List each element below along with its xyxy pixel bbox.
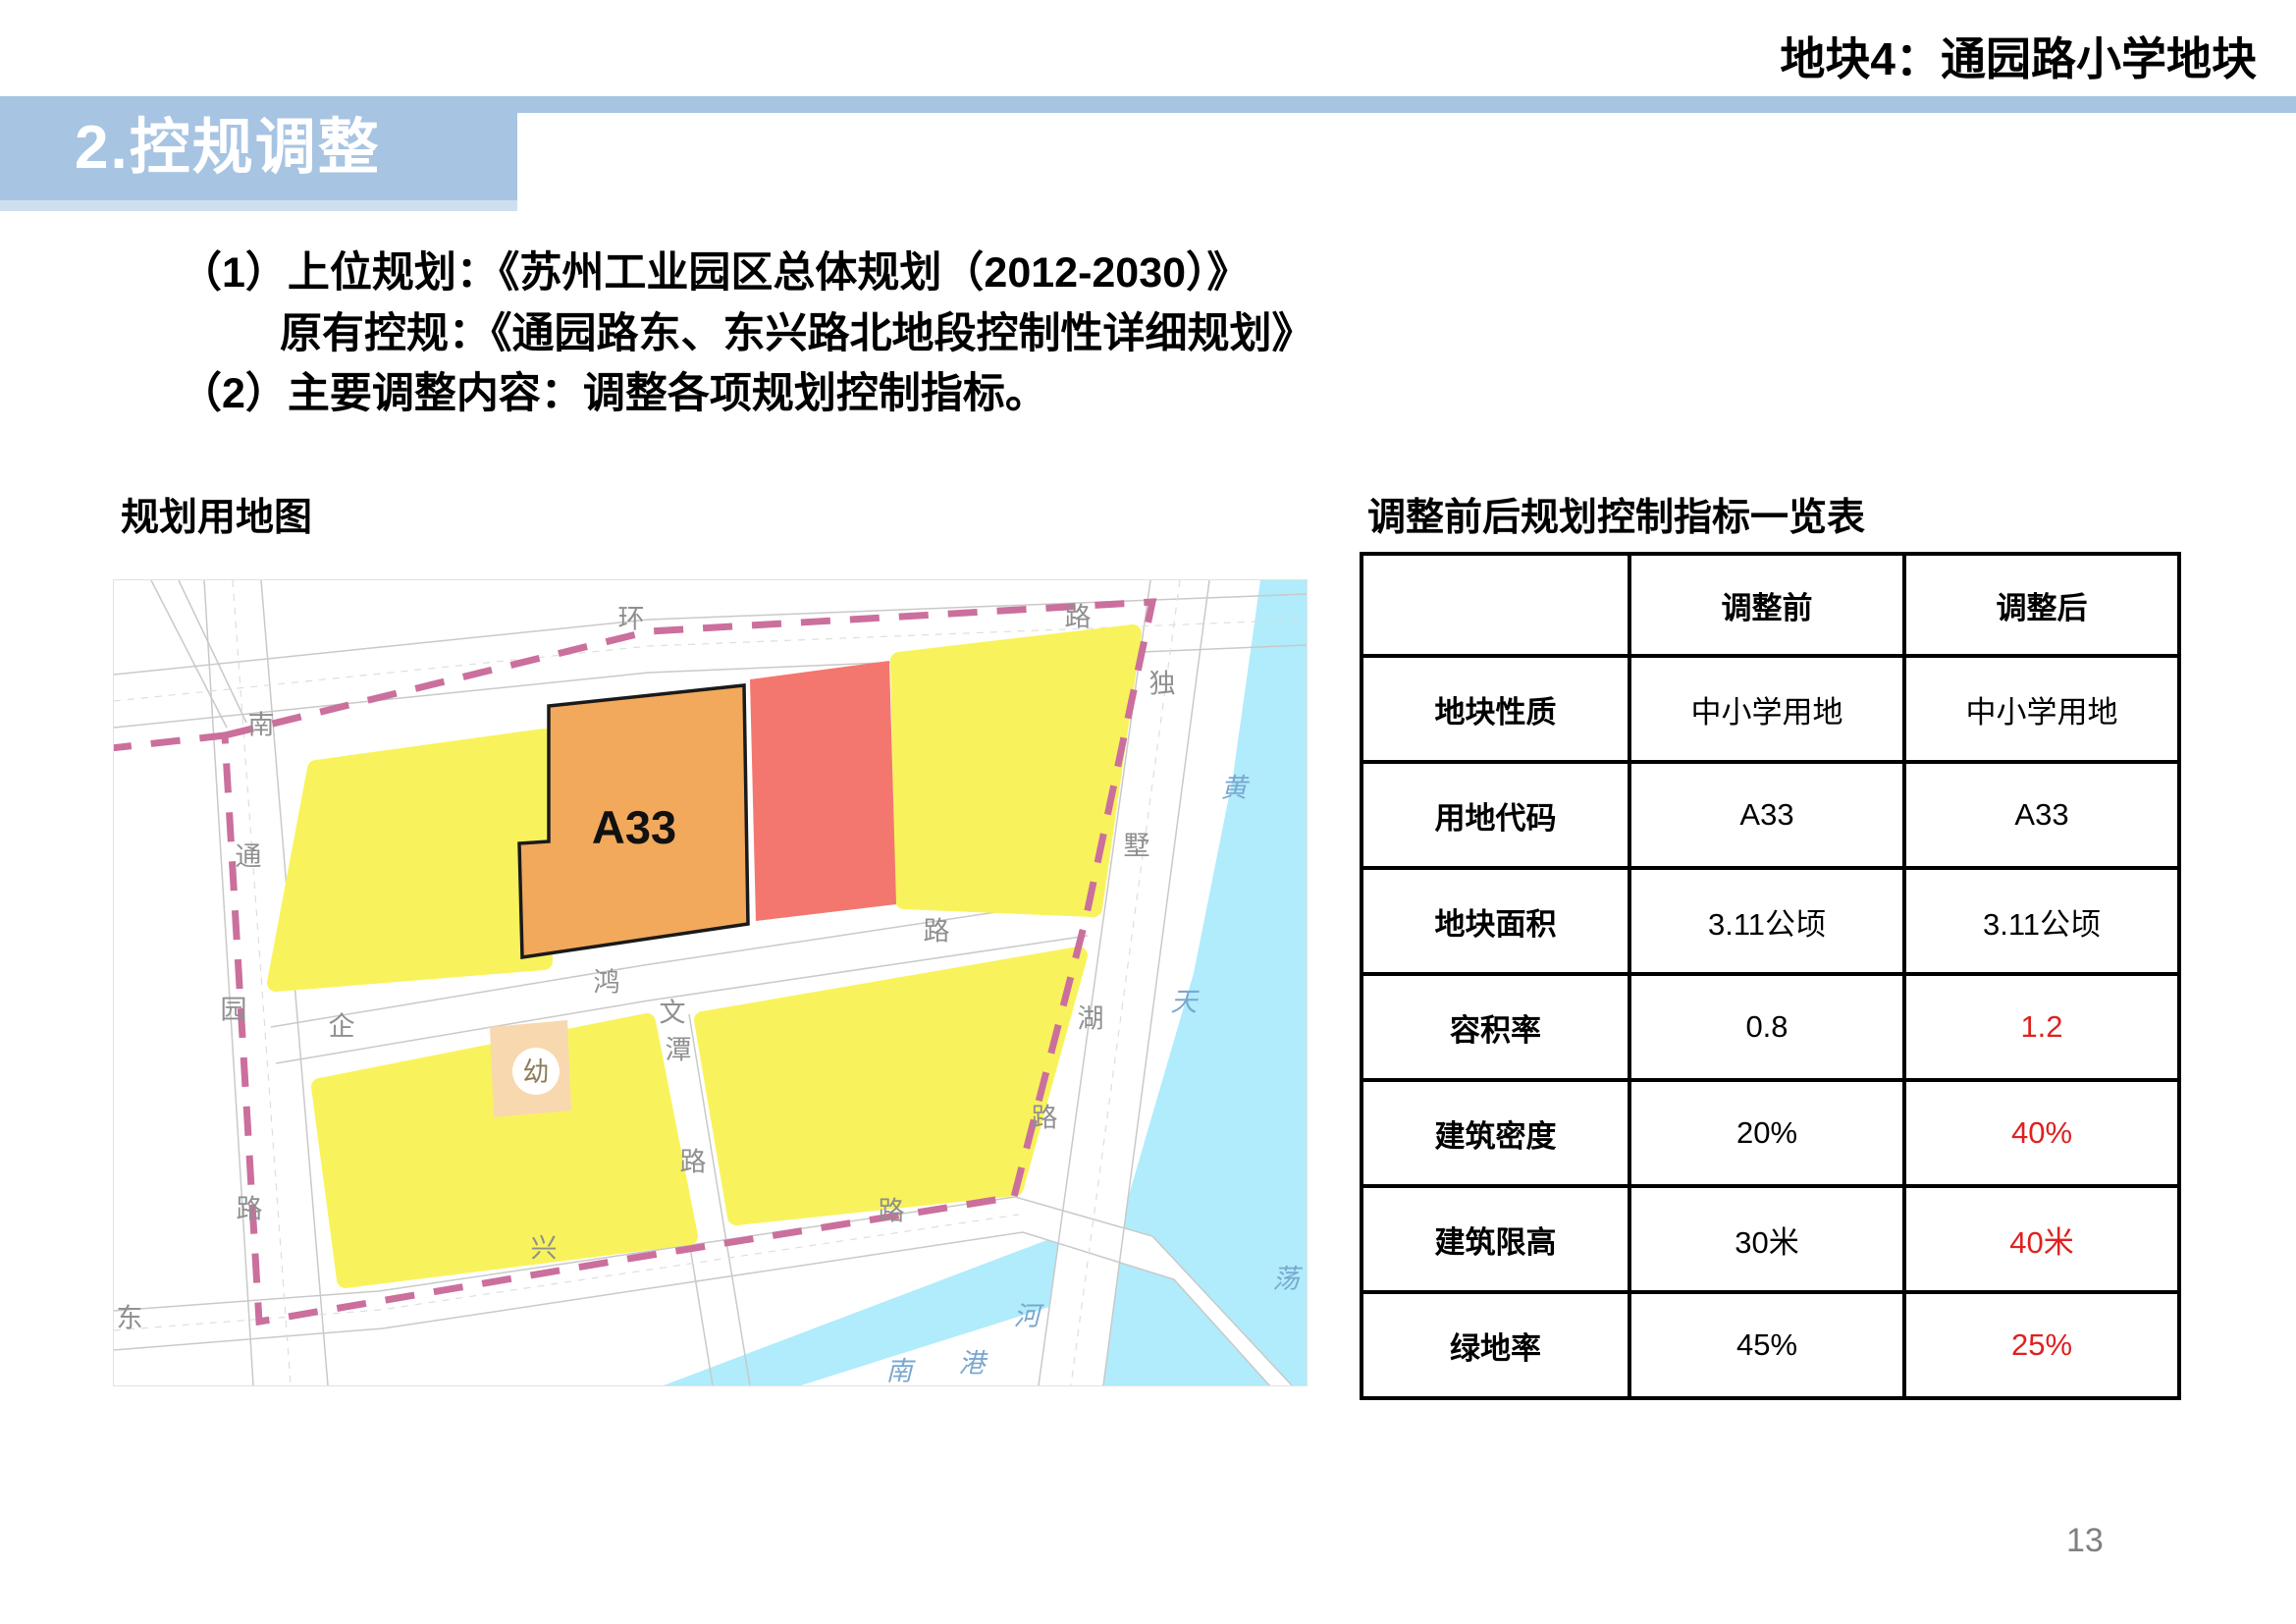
road-name-label: 墅 — [1124, 834, 1150, 860]
plot-header: 地块4：通园路小学地块 — [1780, 24, 2257, 88]
road-name-label: 路 — [1065, 605, 1092, 631]
table-cell: 中小学用地 — [1629, 656, 1904, 762]
road-name-label: 通 — [236, 844, 262, 871]
road-name-label: 路 — [924, 919, 950, 946]
road-name-label: 企 — [329, 1014, 355, 1041]
table-row: 用地代码A33A33 — [1362, 762, 2179, 868]
page-title: 2.控规调整 — [75, 96, 381, 200]
table-row: 绿地率45%25% — [1362, 1292, 2179, 1398]
table-cell: 20% — [1629, 1080, 1904, 1186]
indicator-table: 调整前 调整后 地块性质中小学用地中小学用地用地代码A33A33地块面积3.11… — [1360, 552, 2181, 1400]
water-name-label: 河 — [1014, 1304, 1041, 1330]
table-cell: A33 — [1629, 762, 1904, 868]
col-header-before: 调整前 — [1629, 554, 1904, 656]
water-name-label: 天 — [1171, 990, 1198, 1016]
road-name-label: 路 — [237, 1197, 263, 1223]
table-cell: 建筑限高 — [1362, 1186, 1629, 1292]
table-cell: 40米 — [1904, 1186, 2179, 1292]
table-row: 建筑密度20%40% — [1362, 1080, 2179, 1186]
table-cell: 1.2 — [1904, 974, 2179, 1080]
table-cell: 地块性质 — [1362, 656, 1629, 762]
water-name-label: 南 — [886, 1359, 913, 1385]
road-name-label: 路 — [879, 1199, 905, 1225]
road-name-label: 环 — [618, 607, 645, 633]
table-row: 地块性质中小学用地中小学用地 — [1362, 656, 2179, 762]
water-name-label: 荡 — [1273, 1267, 1300, 1293]
table-cell: 25% — [1904, 1292, 2179, 1398]
page-number: 13 — [2066, 1522, 2104, 1560]
paragraph-upper-plan: （1）上位规划：《苏州工业园区总体规划（2012-2030）》 — [180, 239, 1250, 299]
indicator-table-body: 地块性质中小学用地中小学用地用地代码A33A33地块面积3.11公顷3.11公顷… — [1362, 656, 2179, 1398]
landuse-map: 幼 A33 南环路通园路东企鸿路文潭路独墅湖路兴路黄天荡河港南 — [113, 579, 1308, 1386]
col-header-after: 调整后 — [1904, 554, 2179, 656]
indicator-table-wrap: 调整前 调整后 地块性质中小学用地中小学用地用地代码A33A33地块面积3.11… — [1360, 552, 2177, 1400]
map-section-title: 规划用地图 — [121, 487, 312, 542]
slide: 地块4：通园路小学地块 2.控规调整 （1）上位规划：《苏州工业园区总体规划（2… — [0, 0, 2296, 1624]
table-cell: 30米 — [1629, 1186, 1904, 1292]
map-label-layer: 南环路通园路东企鸿路文潭路独墅湖路兴路黄天荡河港南 — [114, 580, 1307, 1385]
table-cell: 中小学用地 — [1904, 656, 2179, 762]
table-row: 建筑限高30米40米 — [1362, 1186, 2179, 1292]
table-cell: 3.11公顷 — [1629, 868, 1904, 974]
table-cell: 3.11公顷 — [1904, 868, 2179, 974]
road-name-label: 兴 — [531, 1236, 558, 1263]
water-name-label: 港 — [959, 1351, 986, 1378]
table-cell: A33 — [1904, 762, 2179, 868]
table-cell: 建筑密度 — [1362, 1080, 1629, 1186]
road-name-label: 湖 — [1078, 1006, 1104, 1033]
water-name-label: 黄 — [1221, 776, 1248, 802]
road-name-label: 潭 — [666, 1038, 692, 1064]
col-header-blank — [1362, 554, 1629, 656]
table-cell: 45% — [1629, 1292, 1904, 1398]
road-name-label: 鸿 — [594, 970, 620, 997]
table-header-row: 调整前 调整后 — [1362, 554, 2179, 656]
road-name-label: 园 — [221, 998, 247, 1024]
table-row: 容积率0.81.2 — [1362, 974, 2179, 1080]
paragraph-original-plan: 原有控规：《通园路东、东兴路北地段控制性详细规划》 — [280, 299, 1314, 360]
paragraph-adjustment: （2）主要调整内容：调整各项规划控制指标。 — [180, 359, 1047, 420]
road-name-label: 文 — [660, 1001, 686, 1027]
road-name-label: 路 — [1032, 1106, 1058, 1132]
table-section-title: 调整前后规划控制指标一览表 — [1367, 487, 1865, 542]
table-cell: 用地代码 — [1362, 762, 1629, 868]
road-name-label: 独 — [1149, 672, 1176, 698]
table-cell: 40% — [1904, 1080, 2179, 1186]
table-cell: 0.8 — [1629, 974, 1904, 1080]
table-cell: 容积率 — [1362, 974, 1629, 1080]
road-name-label: 东 — [117, 1306, 143, 1332]
banner-strip — [0, 200, 517, 211]
table-cell: 地块面积 — [1362, 868, 1629, 974]
road-name-label: 南 — [248, 713, 275, 739]
table-row: 地块面积3.11公顷3.11公顷 — [1362, 868, 2179, 974]
road-name-label: 路 — [680, 1150, 707, 1176]
table-cell: 绿地率 — [1362, 1292, 1629, 1398]
